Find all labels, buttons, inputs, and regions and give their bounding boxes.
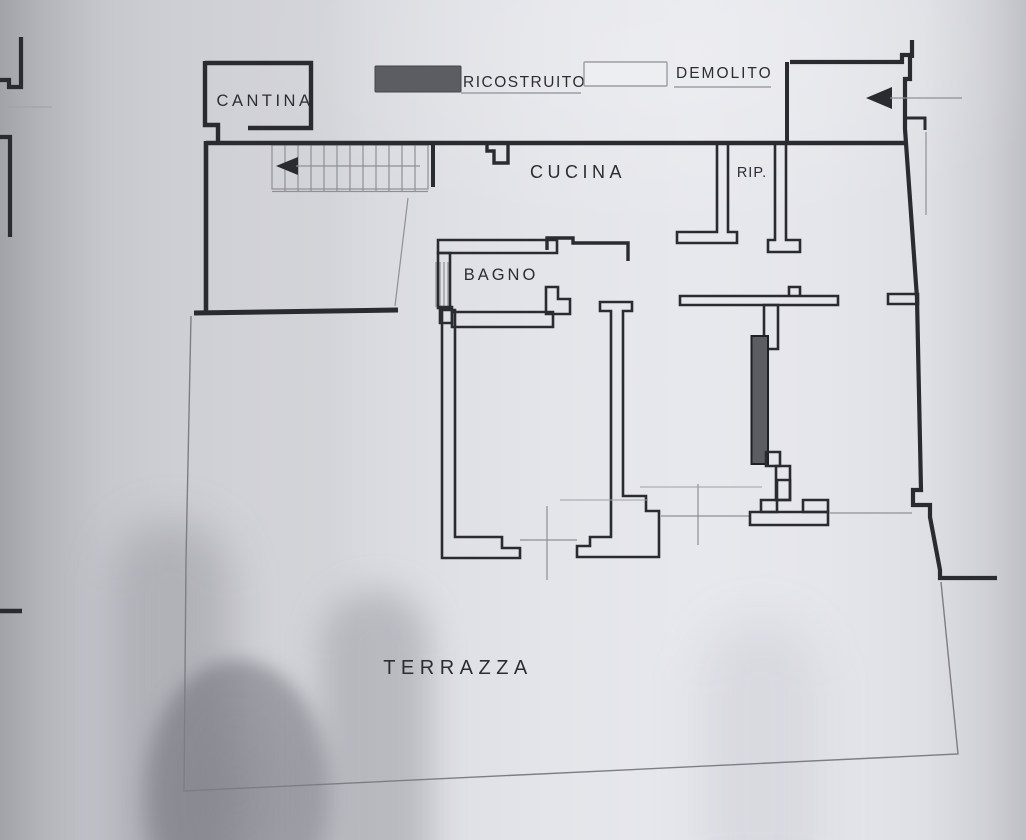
terrazza-area: TERRAZZA — [184, 316, 958, 791]
staircase — [272, 145, 428, 306]
rip-label: RIP. — [737, 165, 767, 181]
stair-direction-arrow-icon — [276, 157, 298, 175]
right-exterior-wall — [787, 40, 997, 578]
cucina-room: CUCINA — [530, 143, 737, 243]
lower-left-room — [442, 310, 577, 580]
bagno-room: BAGNO — [436, 238, 628, 327]
central-partition — [560, 302, 762, 557]
entrance-arrow-icon — [866, 87, 892, 109]
floor-plan-drawing: RICOSTRUITO DEMOLITO CANTINA — [0, 0, 1026, 840]
legend-ricostruito-label: RICOSTRUITO — [463, 74, 586, 91]
sheet-edge-wall-fragments — [0, 37, 52, 611]
legend-demolito-swatch — [584, 62, 667, 86]
ricostruito-wall-segment — [752, 336, 769, 464]
legend-demolito-label: DEMOLITO — [676, 65, 773, 82]
rip-room: RIP. — [737, 143, 800, 252]
legend-ricostruito-swatch — [375, 66, 461, 92]
ricostruito-partition — [680, 287, 838, 525]
legend: RICOSTRUITO DEMOLITO — [375, 62, 773, 93]
cucina-label: CUCINA — [530, 162, 626, 182]
terrazza-label: TERRAZZA — [383, 657, 533, 679]
bagno-label: BAGNO — [464, 266, 539, 284]
cantina-room: CANTINA — [205, 61, 313, 141]
stair-hall — [194, 141, 428, 313]
floor-plan-photo: RICOSTRUITO DEMOLITO CANTINA — [0, 0, 1026, 840]
cantina-label: CANTINA — [217, 92, 314, 110]
